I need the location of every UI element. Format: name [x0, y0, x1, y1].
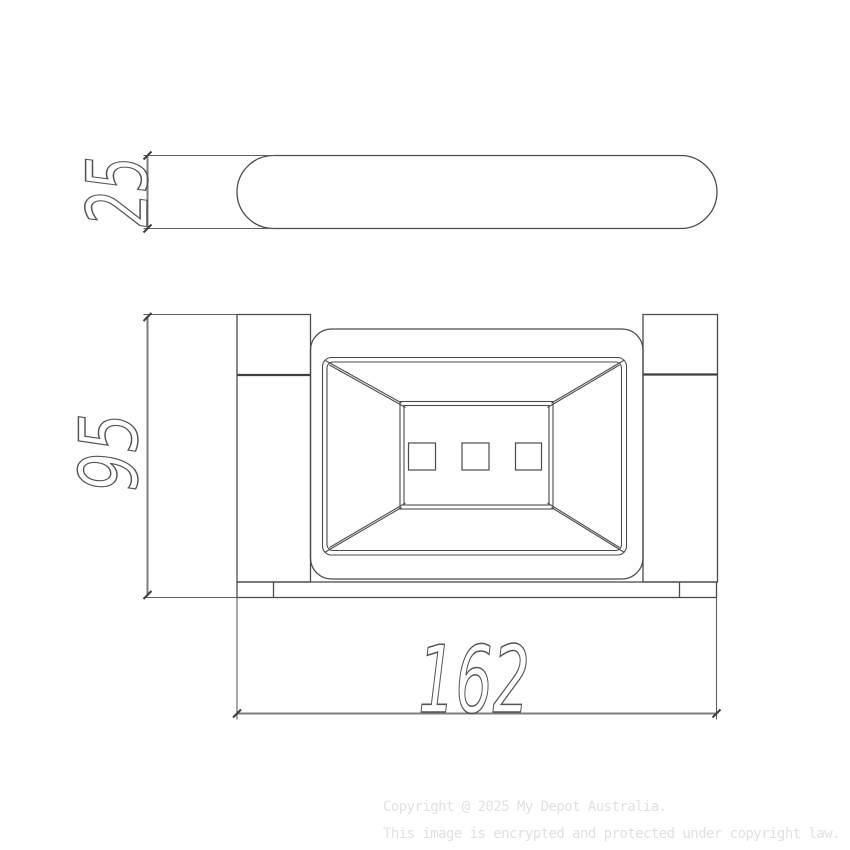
perspective-edges — [325, 360, 625, 553]
perspective-edge — [552, 508, 625, 553]
perspective-edge — [548, 365, 620, 408]
watermark-line1: Copyright @ 2025 My Depot Australia. — [383, 799, 667, 815]
extension-lines-95 — [144, 315, 238, 598]
perspective-edge — [330, 365, 406, 408]
drawing-svg: 25 — [0, 0, 850, 850]
perspective-edge — [325, 360, 402, 403]
dimension-162: 162 — [233, 598, 721, 735]
drain-holes — [409, 443, 542, 470]
basin-floor — [400, 402, 553, 510]
perspective-edge — [325, 508, 402, 553]
technical-drawing-page: 25 — [0, 0, 850, 850]
front-view — [237, 315, 718, 598]
right-bracket — [643, 315, 718, 583]
bracket-dividers — [237, 375, 718, 376]
watermark: Copyright @ 2025 My Depot Australia. Thi… — [383, 799, 840, 842]
base-plate — [237, 582, 717, 598]
drain-hole — [516, 443, 542, 470]
dish-frame — [311, 329, 644, 579]
perspective-edge — [330, 503, 406, 548]
basin-outer — [400, 402, 553, 510]
dimension-label-162: 162 — [418, 627, 530, 735]
drain-hole — [462, 443, 489, 470]
dimension-label-95: 95 — [63, 413, 156, 491]
perspective-edge — [548, 503, 620, 548]
dimension-label-25: 25 — [69, 156, 167, 227]
dimension-25: 25 — [69, 152, 273, 233]
basin-inner — [404, 406, 549, 506]
top-view-capsule-outline — [237, 156, 717, 229]
watermark-line2: This image is encrypted and protected un… — [383, 826, 840, 842]
left-bracket — [237, 315, 311, 583]
drain-hole — [409, 443, 436, 470]
top-view — [237, 156, 717, 229]
dimension-95: 95 — [63, 313, 237, 599]
perspective-edge — [552, 360, 625, 403]
